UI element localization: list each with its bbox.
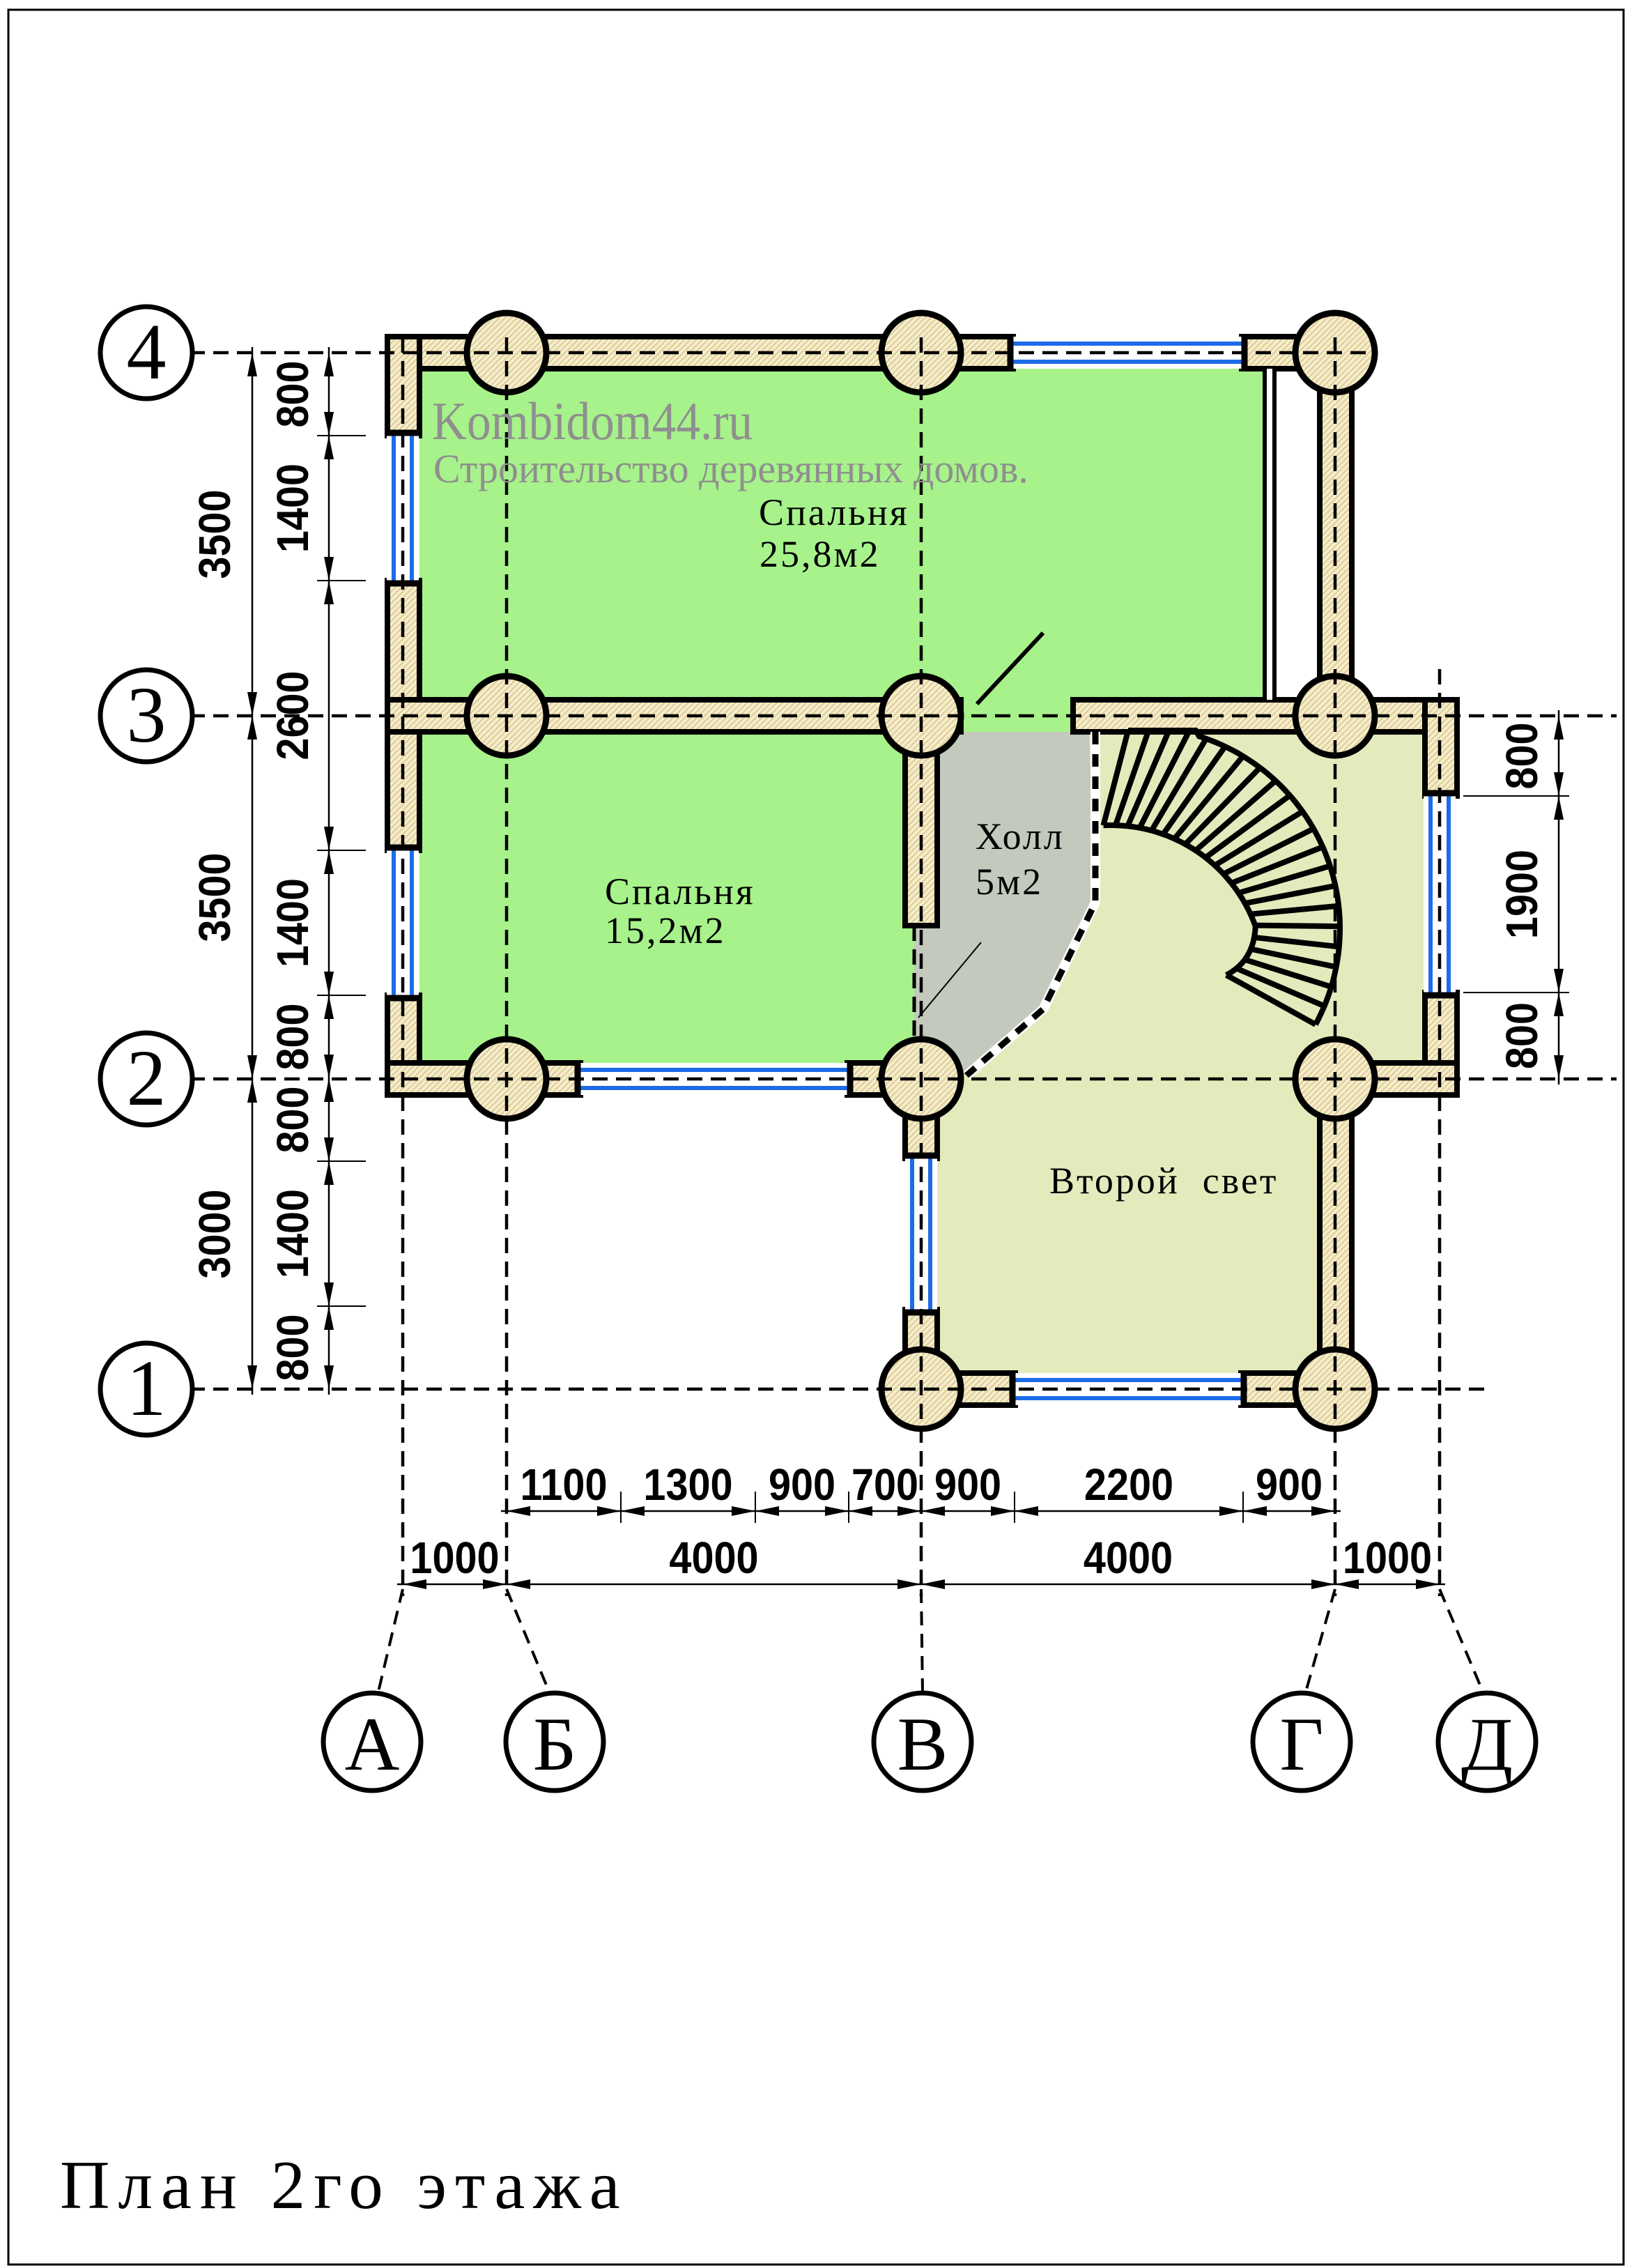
svg-text:1300: 1300: [643, 1459, 732, 1509]
svg-text:1400: 1400: [268, 878, 317, 967]
svg-text:800: 800: [268, 1086, 317, 1153]
svg-text:4000: 4000: [1084, 1533, 1173, 1582]
svg-text:Спальня: Спальня: [759, 491, 909, 533]
svg-text:800: 800: [268, 1003, 317, 1070]
svg-text:900: 900: [769, 1459, 835, 1509]
svg-text:Строительство деревянных домов: Строительство деревянных домов.: [433, 446, 1028, 491]
svg-text:800: 800: [268, 1314, 317, 1381]
svg-text:План 2го этажа: План 2го этажа: [60, 2147, 629, 2223]
svg-text:3000: 3000: [190, 1189, 239, 1278]
svg-text:Г: Г: [1279, 1702, 1323, 1786]
svg-text:3500: 3500: [190, 852, 239, 942]
svg-text:Второй свет: Второй свет: [1049, 1160, 1279, 1202]
svg-text:1100: 1100: [521, 1459, 608, 1509]
svg-text:700: 700: [851, 1459, 918, 1509]
svg-text:800: 800: [1497, 1002, 1546, 1069]
svg-text:1900: 1900: [1497, 850, 1546, 939]
svg-text:1: 1: [127, 1344, 167, 1432]
svg-text:25,8м2: 25,8м2: [760, 533, 881, 575]
svg-text:15,2м2: 15,2м2: [605, 910, 726, 951]
svg-text:3: 3: [127, 671, 167, 759]
svg-text:1400: 1400: [268, 463, 317, 553]
svg-text:2600: 2600: [268, 671, 317, 760]
svg-text:900: 900: [1256, 1459, 1323, 1509]
svg-text:Kombidom44.ru: Kombidom44.ru: [432, 392, 753, 451]
svg-text:Спальня: Спальня: [605, 871, 755, 912]
svg-text:800: 800: [268, 360, 317, 427]
svg-text:5м2: 5м2: [976, 861, 1043, 903]
svg-text:2200: 2200: [1084, 1459, 1173, 1509]
svg-text:4000: 4000: [669, 1533, 758, 1582]
svg-text:1400: 1400: [268, 1189, 317, 1278]
svg-text:1000: 1000: [410, 1533, 499, 1582]
svg-text:2: 2: [127, 1034, 167, 1122]
svg-text:В: В: [897, 1702, 948, 1786]
svg-text:Б: Б: [533, 1702, 577, 1786]
svg-text:А: А: [345, 1702, 400, 1786]
svg-text:3500: 3500: [190, 489, 239, 579]
svg-text:Холл: Холл: [976, 815, 1065, 857]
svg-text:900: 900: [934, 1459, 1001, 1509]
svg-text:4: 4: [127, 307, 167, 396]
svg-text:800: 800: [1497, 722, 1546, 789]
svg-text:1000: 1000: [1343, 1533, 1432, 1582]
svg-text:Д: Д: [1461, 1702, 1513, 1786]
